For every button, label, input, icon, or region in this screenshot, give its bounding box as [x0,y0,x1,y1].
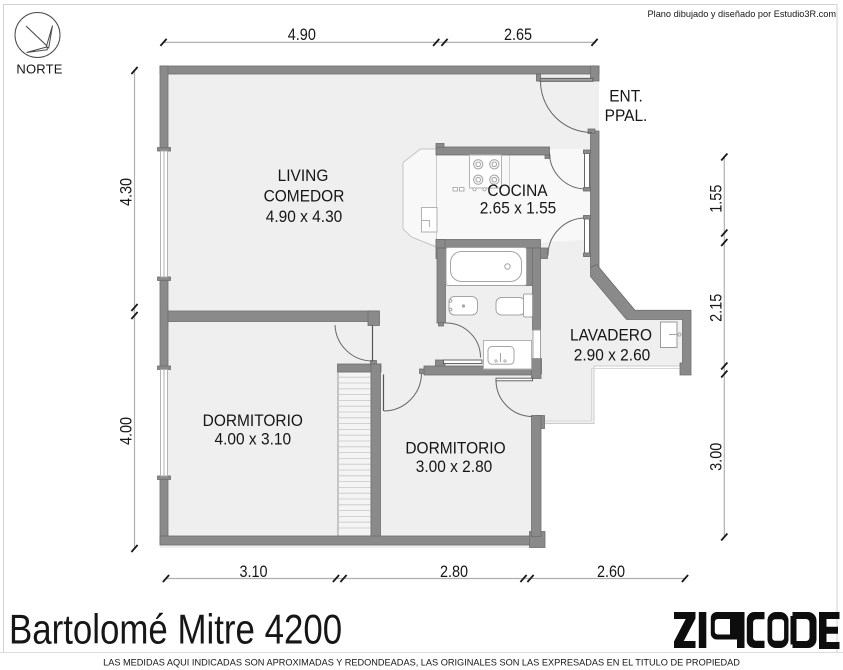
svg-text:PPAL.: PPAL. [605,106,648,125]
svg-text:Plano dibujado y diseñado por: Plano dibujado y diseñado por Estudio3R.… [648,9,837,19]
svg-text:LIVING: LIVING [278,166,329,185]
svg-text:LAS MEDIDAS AQUI INDICADAS SON: LAS MEDIDAS AQUI INDICADAS SON APROXIMAD… [103,658,740,668]
svg-text:LAVADERO: LAVADERO [570,326,652,345]
svg-text:4.90: 4.90 [288,26,316,44]
svg-text:3.00: 3.00 [707,443,725,471]
svg-text:2.80: 2.80 [440,563,468,581]
svg-text:2.65 x 1.55: 2.65 x 1.55 [480,199,557,218]
svg-text:3.10: 3.10 [239,563,267,581]
svg-text:2.60: 2.60 [597,563,625,581]
svg-text:3.00 x 2.80: 3.00 x 2.80 [416,457,493,476]
svg-text:DORMITORIO: DORMITORIO [203,411,303,430]
svg-text:1.55: 1.55 [707,184,725,212]
svg-text:DORMITORIO: DORMITORIO [405,439,505,458]
svg-text:2.15: 2.15 [707,294,725,322]
svg-text:Bartolomé Mitre 4200: Bartolomé Mitre 4200 [9,607,342,654]
svg-text:4.00: 4.00 [117,417,135,445]
svg-text:NORTE: NORTE [16,62,62,77]
svg-text:2.90 x 2.60: 2.90 x 2.60 [574,346,651,365]
svg-text:4.30: 4.30 [117,178,135,206]
svg-text:COMEDOR: COMEDOR [264,187,345,206]
svg-text:4.90 x 4.30: 4.90 x 4.30 [266,207,343,226]
svg-text:2.65: 2.65 [504,26,532,44]
svg-text:ENT.: ENT. [609,87,643,106]
svg-text:4.00 x 3.10: 4.00 x 3.10 [215,430,292,449]
svg-text:COCINA: COCINA [487,181,547,200]
